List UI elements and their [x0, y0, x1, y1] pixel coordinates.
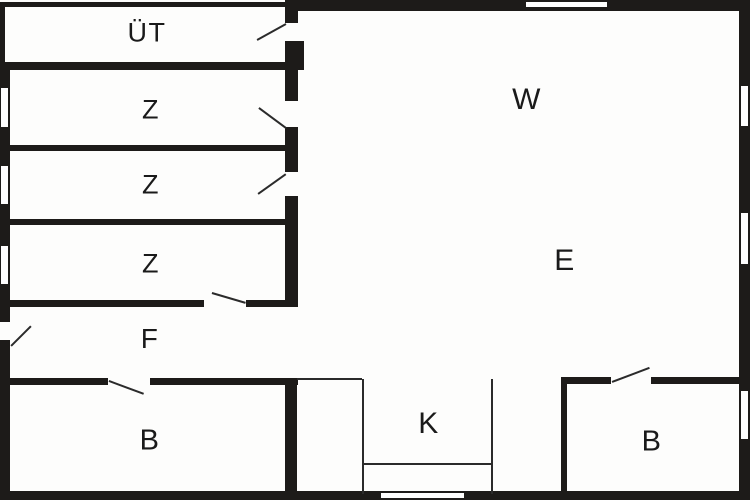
room-label-k: K [418, 407, 440, 441]
door-swing-line [10, 325, 31, 346]
room-label-z2: Z [142, 170, 160, 201]
door-swing-line [257, 23, 287, 40]
window [740, 212, 749, 265]
room-label-z1: Z [142, 95, 160, 126]
wall-segment [286, 0, 750, 11]
door-swing-line [258, 107, 286, 128]
window [740, 85, 749, 127]
kitchen-divider-line [491, 379, 493, 494]
wall-segment [561, 378, 567, 500]
wall-segment [297, 41, 304, 70]
room-label-uet: ÜT [128, 18, 167, 49]
window [0, 165, 9, 205]
wall-segment [0, 491, 750, 500]
wall-segment [10, 145, 298, 151]
room-label-f: F [141, 323, 160, 355]
window [525, 1, 608, 8]
door-opening [285, 172, 298, 196]
wall-segment [0, 2, 287, 7]
door-opening [0, 322, 10, 340]
wall-segment [10, 219, 298, 225]
window [0, 245, 9, 285]
kitchen-divider-line [297, 378, 362, 380]
kitchen-divider-line [362, 463, 492, 465]
door-swing-line [258, 173, 287, 194]
room-label-e: E [554, 244, 576, 278]
wall-segment [10, 300, 298, 307]
wall-segment [0, 62, 298, 70]
room-label-w: W [512, 83, 542, 117]
room-label-z3: Z [142, 249, 160, 280]
door-opening [285, 23, 298, 41]
room-label-b-left: B [140, 425, 161, 458]
window [380, 492, 465, 499]
window [0, 87, 9, 128]
door-opening [285, 101, 298, 127]
room-label-b-right: B [642, 426, 663, 459]
wall-segment [0, 2, 5, 64]
wall-segment [285, 378, 297, 500]
floor-plan: ÜTZZZFBWEKB [0, 0, 750, 500]
wall-segment [10, 378, 298, 385]
kitchen-divider-line [362, 379, 364, 494]
window [740, 390, 749, 440]
